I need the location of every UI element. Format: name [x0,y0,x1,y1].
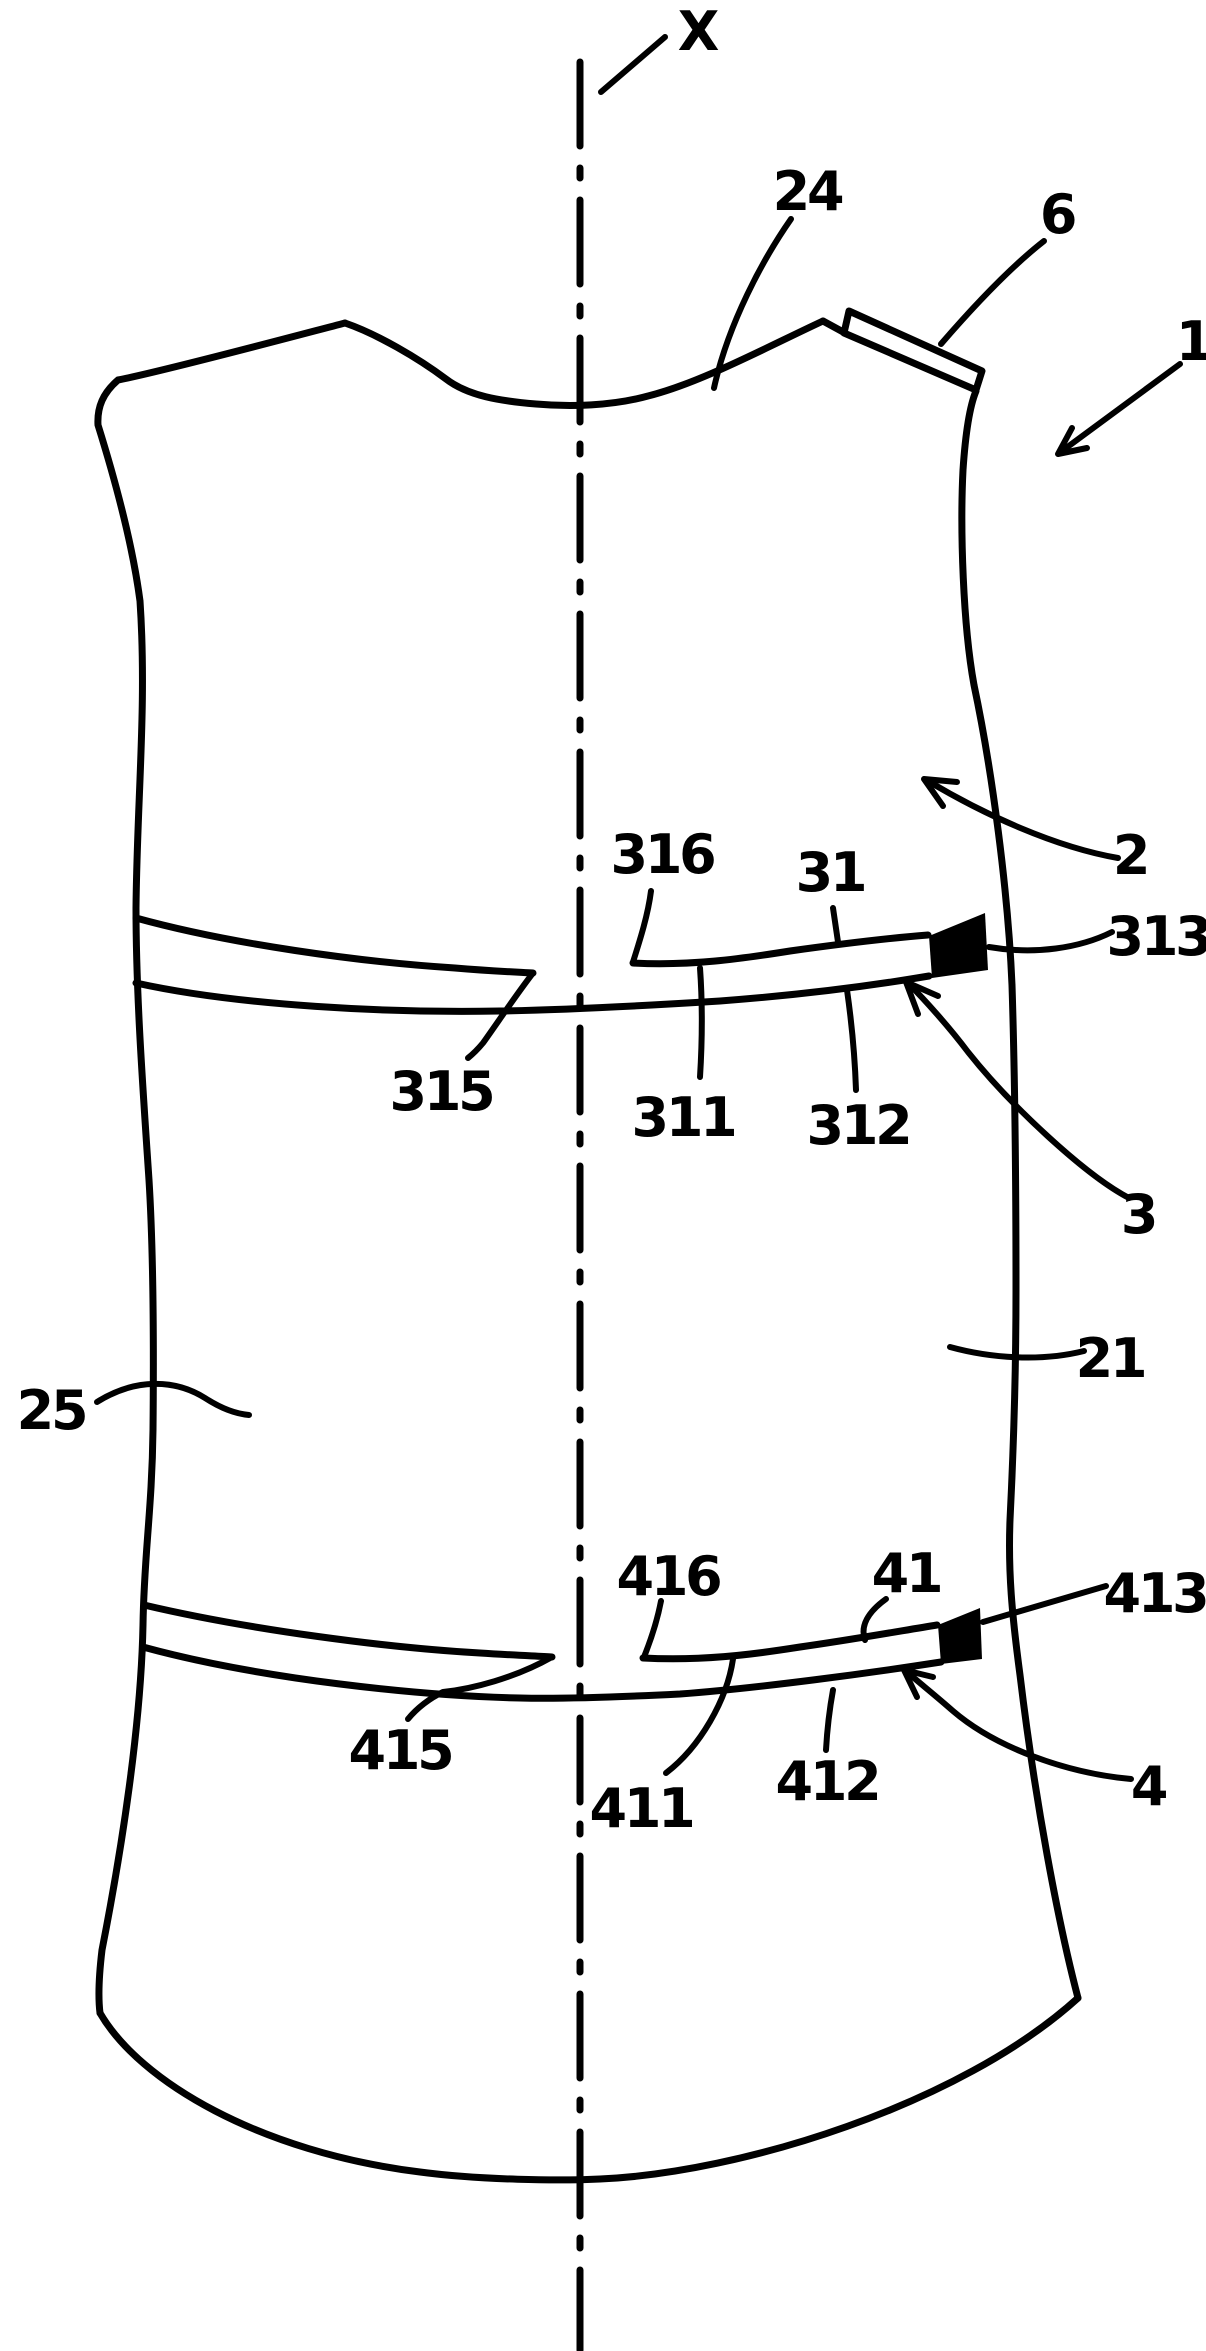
leader-412 [826,1690,833,1750]
label-axis-x: X [678,0,719,63]
leader-2 [928,781,1118,858]
upper-strap-bottom-edge [136,976,929,1011]
upper-strap-top-left-edge [136,918,533,973]
label-41: 41 [872,1542,941,1605]
garment-hem-outline [100,1998,1078,2180]
leader-24 [714,219,791,388]
label-2: 2 [1113,824,1147,887]
upper-strap-tip-leader-315 [468,973,533,1058]
leader-311 [700,968,702,1077]
patent-figure-garment-back-view: X 24 6 1 2 316 31 313 315 311 312 3 25 2… [0,0,1206,2351]
lower-strap-buckle-413 [938,1608,982,1664]
label-24: 24 [773,160,843,223]
label-315: 315 [390,1060,493,1123]
leader-413 [983,1586,1106,1622]
label-411: 411 [590,1777,693,1840]
leader-312 [847,990,856,1090]
leader-316 [633,891,651,962]
upper-strap-top-right-edge [633,935,928,964]
label-1: 1 [1176,310,1206,373]
leader-6 [941,241,1044,344]
label-31: 31 [796,841,865,904]
label-413: 413 [1104,1562,1206,1625]
leader-411 [666,1659,733,1773]
lower-strap-tip-leader-415 [408,1657,552,1719]
garment-left-outline [98,323,345,2013]
leader-1 [1062,364,1180,451]
lower-strap-top-right-edge [643,1625,937,1659]
lower-strap-top-left-edge [144,1605,552,1657]
upper-strap-buckle-313 [929,913,988,978]
label-25: 25 [17,1379,86,1442]
leader-x-axis [601,37,665,92]
label-412: 412 [776,1750,879,1813]
label-312: 312 [807,1094,910,1157]
label-316: 316 [611,823,715,886]
neckline [345,321,823,405]
label-415: 415 [349,1719,452,1782]
garment-right-outline [962,391,1078,1998]
label-313: 313 [1107,905,1206,968]
label-4: 4 [1131,1755,1167,1818]
label-3: 3 [1121,1183,1155,1246]
label-311: 311 [632,1086,735,1149]
leader-416 [644,1601,661,1657]
leader-31 [833,908,838,942]
label-6: 6 [1040,183,1075,246]
label-21: 21 [1076,1327,1145,1390]
leader-25 [97,1384,249,1415]
label-416: 416 [617,1545,721,1608]
